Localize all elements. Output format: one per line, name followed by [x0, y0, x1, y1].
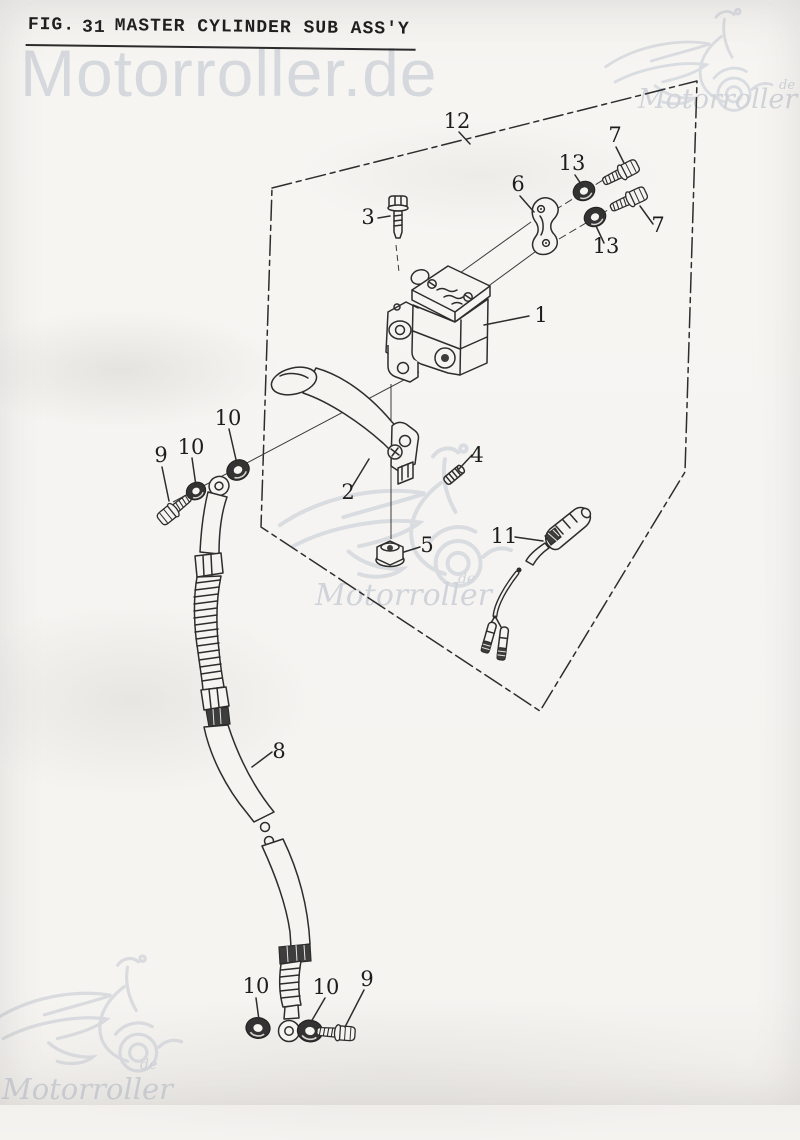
callout-13-upper: 13: [559, 151, 586, 175]
scanned-parts-catalog-page: { "title": { "prefix": "FIG.", "number":…: [0, 0, 800, 1105]
exploded-parts-diagram: Motorroller.de Motorroller de Motorrolle…: [0, 0, 800, 1105]
callout-8: 8: [272, 739, 285, 763]
callout-9-top: 9: [154, 443, 167, 467]
part-banjo-bolt-bottom: [316, 1023, 355, 1042]
figure-number: 31: [82, 18, 106, 38]
callout-1: 1: [534, 303, 547, 327]
part-brake-lever: [269, 363, 419, 484]
callout-13-lower: 13: [593, 234, 620, 258]
part-lock-washer-lower: [581, 204, 609, 230]
watermark-domain-suffix: de: [779, 78, 795, 93]
part-clamp-bolt-upper: [600, 158, 641, 190]
part-brake-hose: [194, 473, 311, 1041]
figure-name: MASTER CYLINDER SUB ASS'Y: [115, 16, 410, 40]
callout-5: 5: [420, 533, 433, 557]
callout-12: 12: [444, 109, 471, 133]
scooter-logo-icon: [0, 956, 181, 1071]
watermark-logo-bottom-left: Motorroller de: [0, 956, 181, 1105]
callout-2: 2: [341, 480, 354, 504]
callout-10-top-outer: 10: [215, 406, 242, 430]
part-handlebar-clamp: [532, 198, 558, 255]
callout-4: 4: [470, 443, 483, 467]
callout-7-upper: 7: [608, 123, 621, 147]
watermark-brand-text: Motorroller: [1, 1072, 175, 1105]
part-pivot-nut: [376, 541, 404, 567]
watermark-brand-text: Motorroller: [637, 84, 799, 115]
callout-6: 6: [511, 172, 524, 196]
figure-label: FIG.: [28, 15, 75, 36]
callout-9-bottom: 9: [360, 967, 373, 991]
callout-7-lower: 7: [651, 213, 664, 237]
figure-title: FIG.31MASTER CYLINDER SUB ASS'Y: [26, 15, 416, 51]
watermark-domain-suffix: de: [458, 571, 475, 587]
part-master-cylinder: [386, 266, 490, 382]
callout-10-bottom-inner: 10: [313, 975, 340, 999]
watermark-logo-middle: Motorroller de: [280, 445, 511, 613]
part-cover-bolt: [388, 196, 408, 238]
watermark-domain-suffix: de: [140, 1057, 157, 1073]
callout-10-bottom-outer: 10: [243, 974, 270, 998]
callout-10-top-inner: 10: [178, 435, 205, 459]
part-seal-washer-bottom-outer: [245, 1016, 272, 1040]
watermark-logo-top-right: Motorroller de: [606, 9, 800, 115]
part-lock-washer-upper: [570, 178, 598, 204]
callout-3: 3: [361, 205, 374, 229]
callout-numbers: 12 7 13 6 3 1 7 13 2 4 5 11 9 10 10 8 10…: [154, 109, 664, 999]
part-pivot-pin: [443, 464, 466, 485]
callout-11: 11: [491, 524, 518, 548]
